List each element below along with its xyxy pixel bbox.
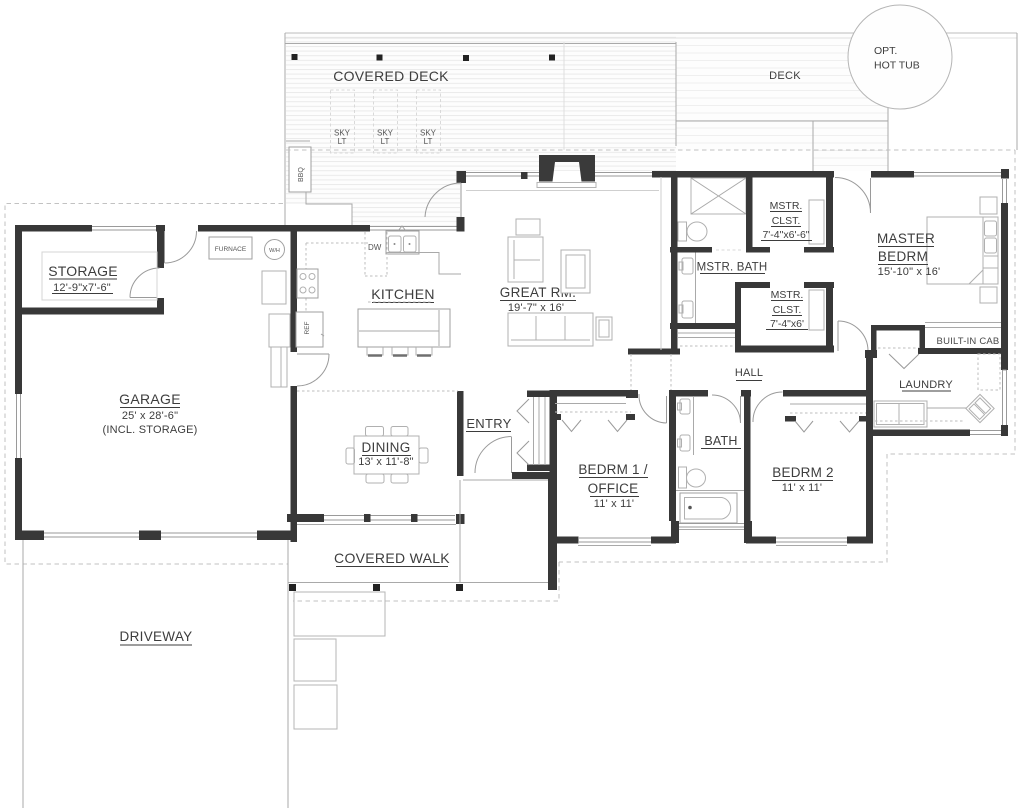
- svg-text:DINING: DINING: [361, 440, 410, 455]
- svg-text:HALL: HALL: [735, 367, 763, 379]
- svg-text:CLST.: CLST.: [773, 304, 802, 316]
- svg-text:MSTR.: MSTR.: [771, 289, 804, 301]
- svg-text:7'-4"x6'-6": 7'-4"x6'-6": [762, 229, 809, 241]
- svg-text:BEDRM: BEDRM: [878, 249, 928, 264]
- svg-text:19'-7" x 16': 19'-7" x 16': [508, 302, 564, 314]
- svg-text:12'-9"x7'-6": 12'-9"x7'-6": [53, 282, 111, 294]
- svg-text:OPT.: OPT.: [874, 45, 897, 57]
- svg-text:OFFICE: OFFICE: [588, 481, 639, 496]
- svg-text:11' x 11': 11' x 11': [594, 498, 634, 510]
- svg-text:COVERED DECK: COVERED DECK: [333, 68, 449, 84]
- svg-text:BEDRM 2: BEDRM 2: [772, 465, 833, 480]
- svg-text:ENTRY: ENTRY: [466, 416, 511, 431]
- svg-text:7'-4"x6': 7'-4"x6': [770, 318, 804, 330]
- svg-text:BBQ: BBQ: [298, 167, 305, 182]
- svg-text:BEDRM 1 /: BEDRM 1 /: [578, 462, 647, 477]
- svg-text:MASTER: MASTER: [877, 231, 935, 246]
- svg-text:MSTR. BATH: MSTR. BATH: [697, 262, 768, 274]
- svg-text:BUILT-IN CAB: BUILT-IN CAB: [937, 336, 1000, 347]
- svg-text:15'-10" x 16': 15'-10" x 16': [878, 266, 941, 278]
- svg-text:FURNACE: FURNACE: [215, 246, 247, 253]
- svg-text:STORAGE: STORAGE: [48, 263, 118, 279]
- svg-text:DECK: DECK: [769, 70, 801, 82]
- svg-text:LAUNDRY: LAUNDRY: [899, 379, 953, 391]
- svg-text:DRIVEWAY: DRIVEWAY: [120, 629, 193, 644]
- svg-text:(INCL. STORAGE): (INCL. STORAGE): [102, 424, 197, 436]
- svg-text:GARAGE: GARAGE: [119, 391, 181, 407]
- svg-text:COVERED WALK: COVERED WALK: [334, 550, 450, 566]
- svg-text:REF: REF: [304, 321, 311, 334]
- svg-text:W/H: W/H: [269, 248, 280, 254]
- svg-text:BATH: BATH: [704, 434, 737, 448]
- svg-text:LT: LT: [338, 137, 347, 146]
- svg-text:11' x 11': 11' x 11': [782, 482, 822, 494]
- svg-text:KITCHEN: KITCHEN: [371, 286, 435, 302]
- svg-text:MSTR.: MSTR.: [770, 200, 803, 212]
- svg-text:CLST.: CLST.: [772, 215, 801, 227]
- svg-text:LT: LT: [381, 137, 390, 146]
- svg-text:DW: DW: [368, 243, 382, 252]
- svg-text:LT: LT: [424, 137, 433, 146]
- svg-text:HOT TUB: HOT TUB: [874, 60, 920, 72]
- svg-text:13' x 11'-8": 13' x 11'-8": [358, 456, 414, 468]
- svg-text:25' x 28'-6": 25' x 28'-6": [122, 410, 178, 422]
